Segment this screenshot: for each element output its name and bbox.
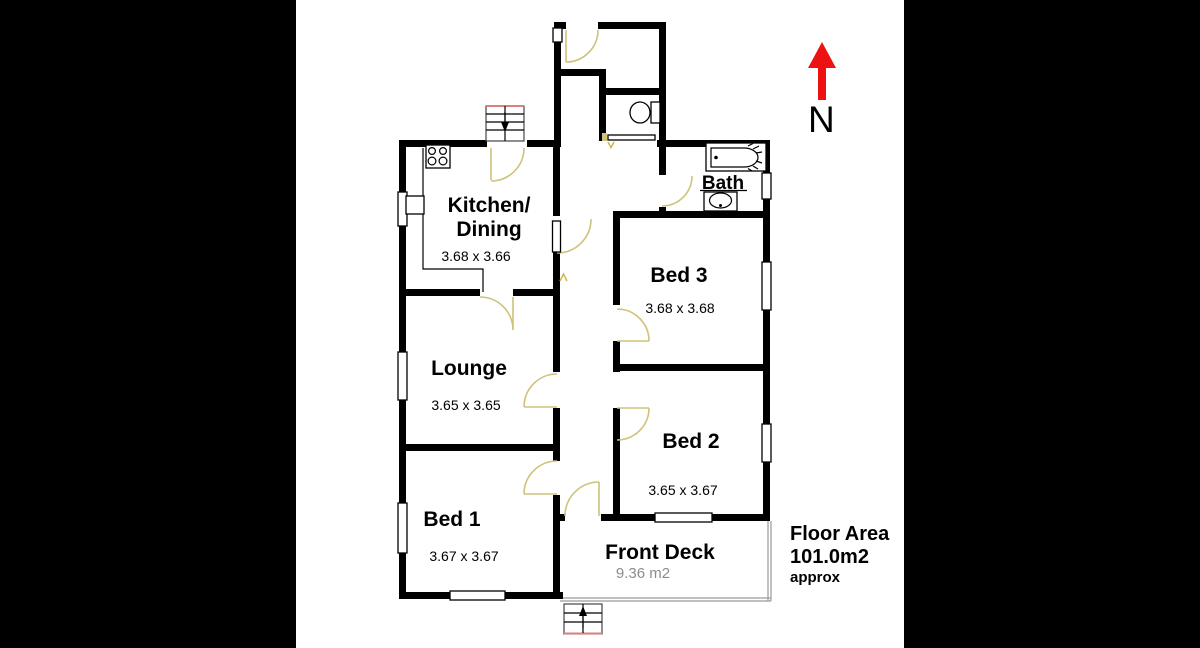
wall-segment xyxy=(613,341,620,372)
side-panel-right xyxy=(904,0,1200,648)
floor-area-value: 101.0m2 xyxy=(790,546,869,568)
wall-segment xyxy=(513,289,560,296)
wall-segment xyxy=(399,289,480,296)
floor-area-title: Floor Area xyxy=(790,523,890,545)
wall-segment xyxy=(557,69,604,76)
window-lounge-west xyxy=(398,352,407,400)
window-bed1-south xyxy=(450,591,505,600)
window-bed2-south xyxy=(655,513,712,522)
room-dim-lounge: 3.65 x 3.65 xyxy=(431,397,500,413)
room-label-bed1: Bed 1 xyxy=(423,508,481,531)
wall-segment xyxy=(598,22,666,29)
window-bed1-west xyxy=(398,503,407,553)
wall-segment xyxy=(553,514,565,521)
wall-segment xyxy=(659,22,666,175)
stove-icon xyxy=(426,145,450,168)
room-dim-bed3: 3.68 x 3.68 xyxy=(645,300,714,316)
window-rear-west xyxy=(553,28,562,42)
north-label: N xyxy=(808,99,835,140)
room-label-front-deck: Front Deck xyxy=(605,541,715,564)
floor-area-qualifier: approx xyxy=(790,569,841,586)
wall-segment xyxy=(553,495,560,599)
room-label-bed3: Bed 3 xyxy=(650,264,707,287)
floorplan-canvas: Kitchen/ Dining 3.68 x 3.66 Lounge 3.65 … xyxy=(0,0,1200,648)
north-arrow-shaft xyxy=(818,66,826,100)
side-panel-left xyxy=(0,0,296,648)
room-label-kitchen-line2: Dining xyxy=(456,218,521,241)
wall-segment xyxy=(553,289,560,372)
kitchen-slider-leaf xyxy=(553,221,561,252)
wall-segment xyxy=(613,364,770,371)
rear-stairs-icon xyxy=(486,106,524,141)
wall-segment xyxy=(613,211,620,305)
room-label-bed2: Bed 2 xyxy=(662,430,719,453)
front-deck-area: 9.36 m2 xyxy=(616,565,670,582)
room-label-bath: Bath xyxy=(702,173,744,194)
bathtub-icon xyxy=(706,143,766,171)
wall-segment xyxy=(399,444,560,451)
wc-sliding-door xyxy=(608,135,655,140)
toilet-tank xyxy=(651,102,660,123)
room-dim-bed2: 3.65 x 3.67 xyxy=(648,482,717,498)
window-bed2-east xyxy=(762,424,771,462)
wall-segment xyxy=(613,211,770,218)
toilet-icon xyxy=(630,102,660,123)
wc-slider-jamb xyxy=(602,133,607,141)
window-bed3-east xyxy=(762,262,771,310)
tub-drain xyxy=(714,156,718,160)
room-label-lounge: Lounge xyxy=(431,357,507,380)
front-steps-icon xyxy=(564,604,602,634)
wall-segment xyxy=(553,444,560,461)
floorplan-page: Kitchen/ Dining 3.68 x 3.66 Lounge 3.65 … xyxy=(0,0,1200,648)
wall-segment xyxy=(599,69,606,141)
room-dim-kitchen: 3.68 x 3.66 xyxy=(441,248,510,264)
window-bath-east xyxy=(762,173,771,199)
basin-drain xyxy=(719,204,722,207)
toilet-bowl xyxy=(630,102,650,123)
room-dim-bed1: 3.67 x 3.67 xyxy=(429,548,498,564)
sink-icon xyxy=(406,196,424,214)
room-label-kitchen-line1: Kitchen/ xyxy=(448,194,531,217)
wall-segment xyxy=(553,140,560,216)
wall-segment xyxy=(613,408,620,521)
wall-segment xyxy=(604,88,663,95)
